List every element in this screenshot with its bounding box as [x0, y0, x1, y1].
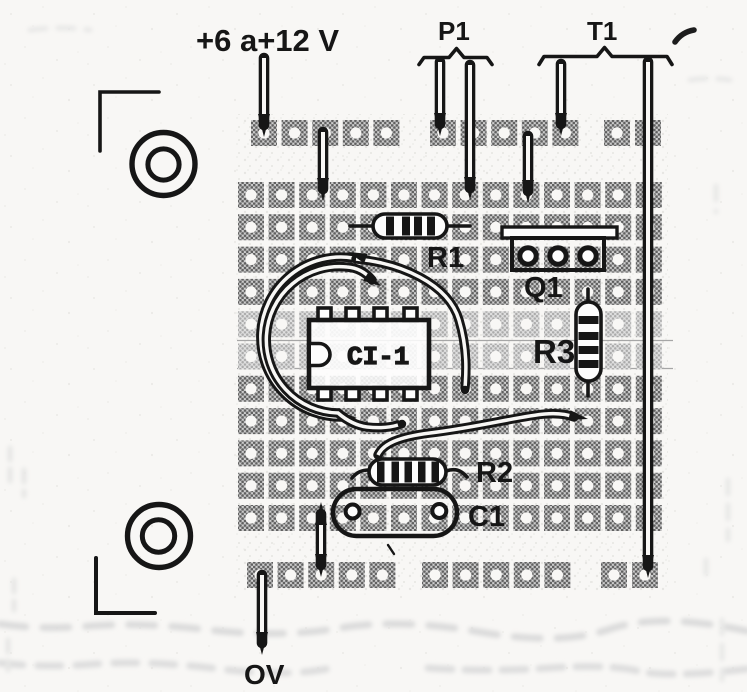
svg-text:C1: C1	[468, 501, 505, 533]
svg-text:R3: R3	[533, 333, 575, 370]
svg-text:P1: P1	[438, 16, 470, 46]
svg-text:Q1: Q1	[524, 272, 563, 304]
svg-text:T1: T1	[587, 16, 617, 46]
svg-text:R2: R2	[476, 457, 513, 489]
svg-text:OV: OV	[244, 659, 285, 690]
svg-text:+6 a+12 V: +6 a+12 V	[196, 23, 339, 58]
svg-text:R1: R1	[427, 242, 464, 274]
svg-text:CI-1: CI-1	[347, 342, 409, 372]
